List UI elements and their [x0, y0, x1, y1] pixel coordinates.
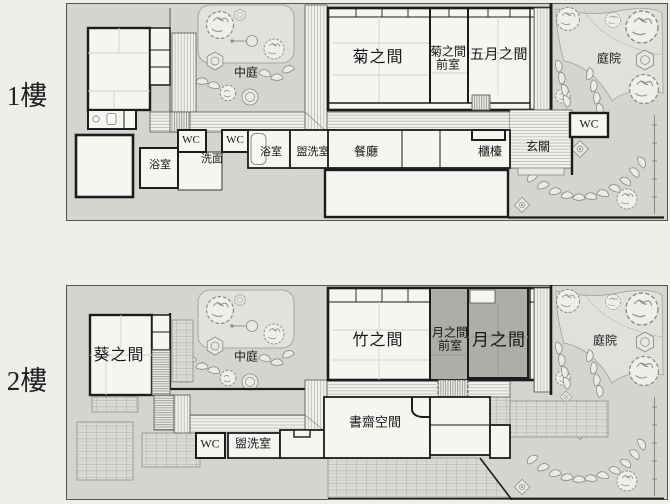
stairs — [154, 395, 174, 430]
room-bottom-hall — [325, 170, 508, 217]
stairs — [472, 95, 490, 110]
floor2-title: 2樓 — [7, 366, 48, 396]
label-take: 竹之間 — [352, 332, 403, 350]
label-entrance: 玄關 — [526, 140, 550, 153]
label-study: 書齋空間 — [349, 416, 401, 431]
label-wc-center: WC — [226, 134, 244, 146]
corridor-engawa — [327, 380, 510, 397]
label-washroom-f2: 盥洗室 — [235, 437, 271, 450]
label-washroom-f1: 盥洗室 — [297, 146, 330, 158]
label-counter: 櫃檯 — [478, 145, 502, 158]
label-tsuki-ante: 月之間 前室 — [432, 326, 468, 351]
corridor-east — [534, 8, 550, 110]
label-wc-entry: WC — [579, 117, 598, 130]
label-satsuki: 五月之間 — [470, 48, 528, 64]
label-garden-f1: 庭院 — [597, 52, 621, 65]
room-detached — [76, 135, 133, 197]
toilet-icon — [93, 116, 99, 122]
label-bath-west: 浴室 — [149, 159, 171, 171]
label-bath-main: 浴室 — [260, 146, 282, 158]
stairs — [152, 350, 170, 395]
label-aoi: 葵之間 — [93, 347, 144, 365]
entrance-step — [518, 168, 564, 175]
label-tsuki: 月之間 — [472, 330, 526, 349]
floor2-plan — [66, 285, 668, 500]
label-washbasin: 洗面 — [201, 153, 223, 165]
stairs — [438, 380, 468, 397]
floorplan-page: { "floor1": { "label": "1樓", "rooms": { … — [0, 0, 670, 504]
corridor-west — [305, 5, 327, 132]
fixture-icon — [107, 114, 116, 125]
label-kiku: 菊之間 — [352, 49, 403, 67]
label-courtyard-f1: 中庭 — [234, 66, 258, 79]
corridor — [174, 395, 190, 433]
label-courtyard-f2: 中庭 — [234, 350, 258, 363]
floor1-plan — [66, 3, 668, 221]
label-wc-west: WC — [182, 134, 200, 146]
label-garden-f2: 庭院 — [593, 334, 617, 347]
label-dining: 餐廳 — [354, 145, 378, 158]
label-wc-f2: WC — [200, 437, 219, 450]
corridor-east — [534, 288, 550, 392]
floor1-title: 1樓 — [7, 81, 48, 111]
counter-nook — [472, 130, 505, 140]
label-kiku-ante: 菊之間 前室 — [430, 45, 466, 70]
